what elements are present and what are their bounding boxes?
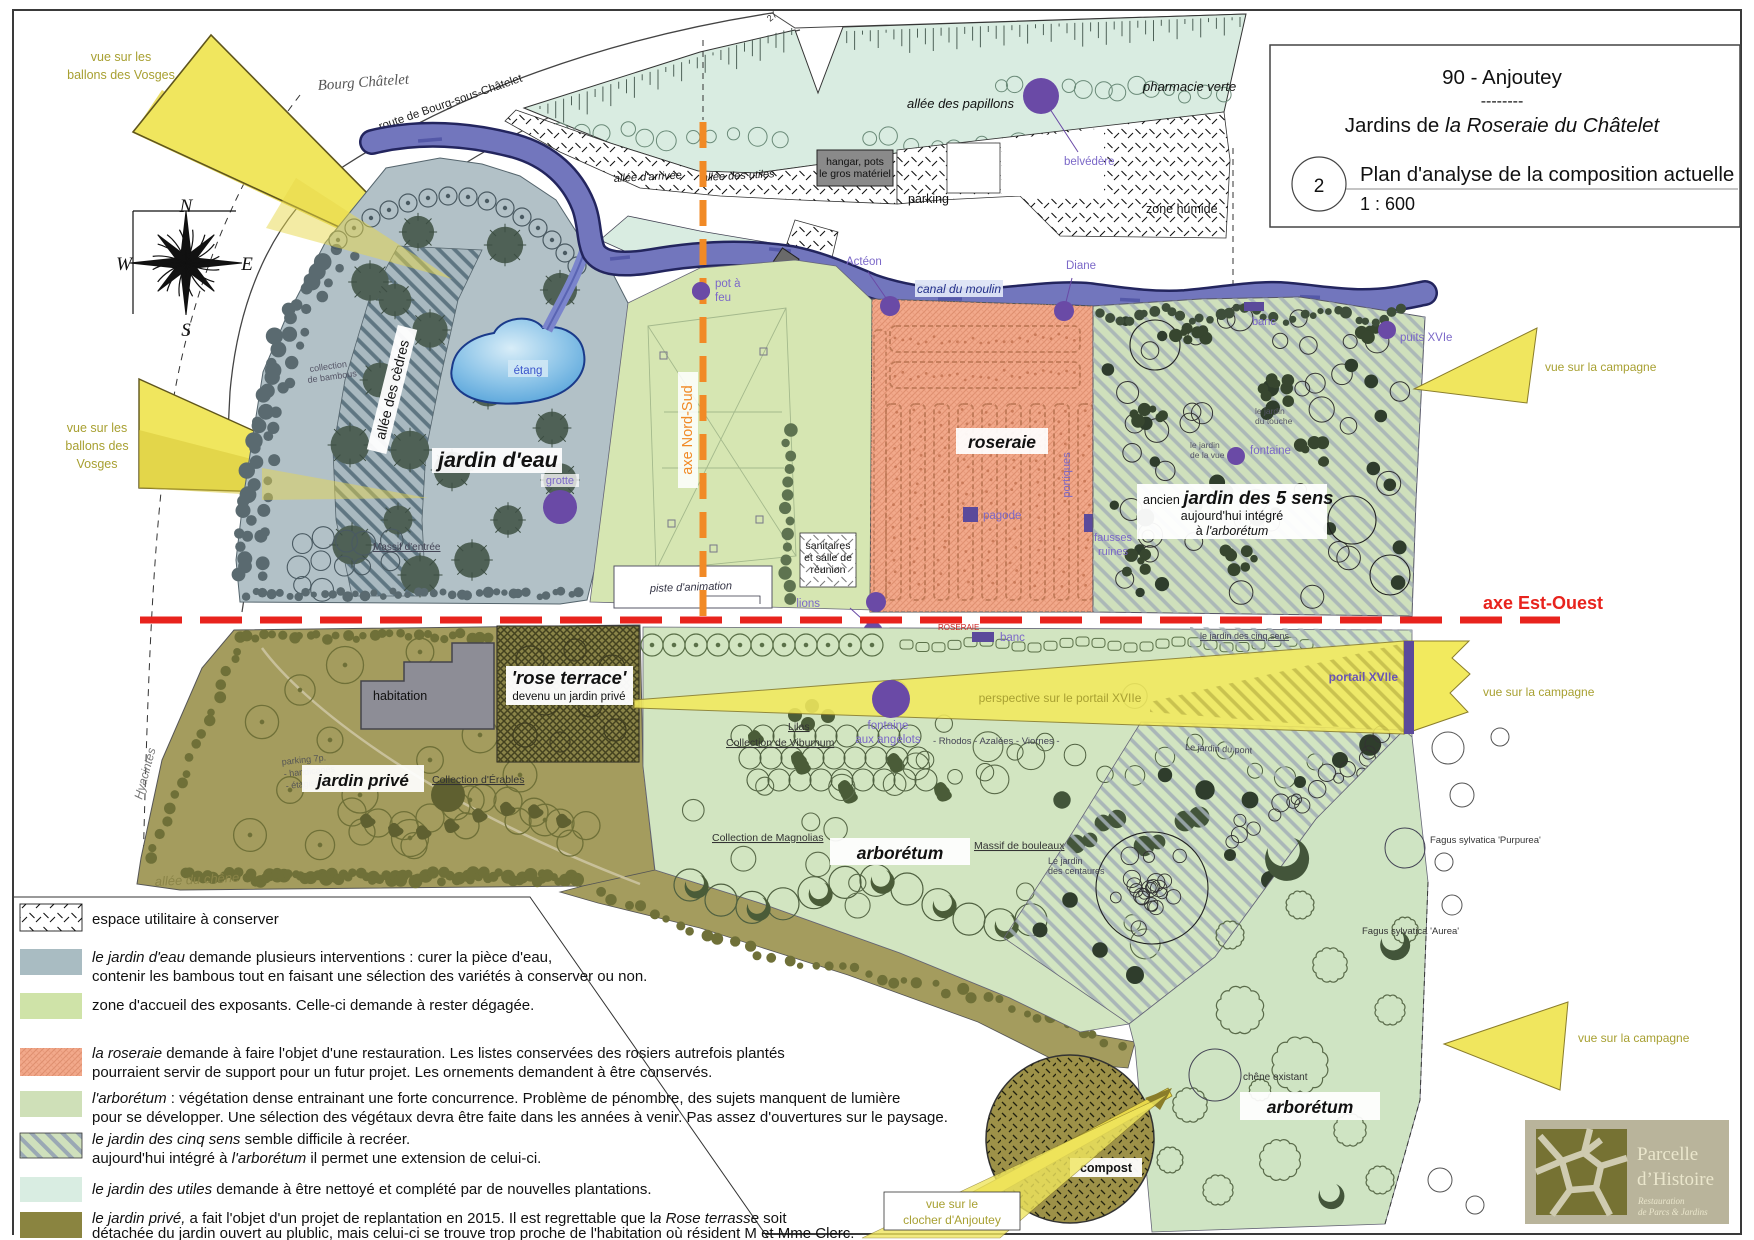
svg-text:aux angelots: aux angelots (855, 734, 920, 746)
svg-text:à l'arborétum: à l'arborétum (1196, 524, 1269, 538)
svg-text:de Parcs & Jardins: de Parcs & Jardins (1638, 1207, 1708, 1217)
svg-text:S: S (181, 320, 191, 341)
svg-text:fontaine: fontaine (1250, 445, 1291, 457)
svg-text:le jardin des utiles demande à: le jardin des utiles demande à être nett… (92, 1181, 652, 1198)
svg-text:E: E (240, 254, 253, 275)
svg-text:détachée du jardin ouvert au p: détachée du jardin ouvert au plublic, ma… (92, 1225, 854, 1240)
svg-text:axe Nord-Sud: axe Nord-Sud (680, 385, 696, 474)
svg-text:le jardin: le jardin (1190, 440, 1220, 450)
svg-text:Lilas: Lilas (788, 721, 810, 733)
svg-text:Le jardin: Le jardin (1048, 856, 1083, 866)
svg-text:pourraient servir de support p: pourraient servir de support pour un fut… (92, 1064, 712, 1081)
svg-text:Vosges: Vosges (76, 457, 117, 471)
svg-text:vue sur les: vue sur les (67, 421, 127, 435)
svg-text:Massif de bouleaux: Massif de bouleaux (974, 840, 1065, 852)
svg-text:sanitaires: sanitaires (806, 540, 851, 552)
svg-text:banc: banc (1000, 632, 1025, 644)
svg-text:portail XVIIe: portail XVIIe (1329, 670, 1399, 684)
svg-text:zone d'accueil des exposants.: zone d'accueil des exposants. Celle-ci d… (92, 997, 534, 1014)
svg-text:le gros matériel: le gros matériel (819, 168, 891, 180)
svg-text:devenu un jardin privé: devenu un jardin privé (512, 691, 625, 703)
svg-text:pot à: pot à (715, 278, 741, 290)
svg-text:banc: banc (1252, 316, 1276, 328)
svg-text:2: 2 (1314, 176, 1325, 197)
svg-text:arborétum: arborétum (857, 843, 944, 863)
svg-text:fontaine: fontaine (868, 720, 909, 732)
svg-text:fausses: fausses (1094, 532, 1132, 544)
svg-text:le jardin d'eau demande plusie: le jardin d'eau demande plusieurs interv… (92, 949, 552, 966)
svg-text:pharmacie verte: pharmacie verte (1142, 79, 1236, 94)
svg-text:arborétum: arborétum (1267, 1097, 1354, 1117)
svg-text:Fagus sylvatica 'Purpurea': Fagus sylvatica 'Purpurea' (1430, 835, 1541, 846)
svg-text:espace utilitaire à conserver: espace utilitaire à conserver (92, 911, 279, 928)
svg-text:N: N (179, 196, 194, 217)
svg-text:parking: parking (908, 192, 949, 206)
svg-text:le jardin des cinq sens semble: le jardin des cinq sens semble difficile… (92, 1131, 410, 1148)
svg-text:du touche: du touche (1255, 416, 1293, 426)
svg-text:étang: étang (514, 365, 543, 377)
svg-text:Fagus sylvatica 'Aurea': Fagus sylvatica 'Aurea' (1362, 926, 1459, 937)
svg-text:vue sur la campagne: vue sur la campagne (1578, 1031, 1690, 1045)
svg-text:grotte: grotte (546, 475, 574, 487)
svg-text:des centaures: des centaures (1048, 866, 1105, 876)
svg-text:lions: lions (796, 598, 820, 610)
svg-text:le jardin: le jardin (1255, 406, 1285, 416)
svg-text:perspective sur le portail XVI: perspective sur le portail XVIIe (979, 691, 1142, 705)
svg-text:contenir les bambous tout en f: contenir les bambous tout en faisant une… (92, 968, 647, 985)
svg-text:jardin privé: jardin privé (315, 771, 409, 790)
svg-text:ROSERAIE: ROSERAIE (938, 623, 979, 632)
svg-text:et salle de: et salle de (804, 552, 852, 564)
svg-text:Actéon: Actéon (846, 256, 882, 268)
svg-text:- Rhodos - Azalées - Viornes -: - Rhodos - Azalées - Viornes - (933, 736, 1060, 747)
svg-text:1 : 600: 1 : 600 (1360, 194, 1415, 214)
svg-text:hangar, pots: hangar, pots (826, 156, 884, 168)
svg-text:belvédère: belvédère (1064, 156, 1115, 168)
svg-text:Restauration: Restauration (1637, 1196, 1685, 1206)
svg-text:aujourd'hui intégré: aujourd'hui intégré (1181, 509, 1284, 523)
svg-text:jardin d'eau: jardin d'eau (435, 448, 558, 472)
svg-text:Jardins de la Roseraie du Chât: Jardins de la Roseraie du Châtelet (1345, 114, 1661, 137)
svg-text:le jardin des cinq sens: le jardin des cinq sens (1200, 631, 1290, 641)
svg-text:feu: feu (715, 292, 731, 304)
svg-text:Collection d'Érables: Collection d'Érables (432, 773, 524, 786)
svg-text:vue sur la campagne: vue sur la campagne (1483, 685, 1595, 699)
svg-text:allée des papillons: allée des papillons (907, 96, 1014, 111)
svg-text:axe Est-Ouest: axe Est-Ouest (1483, 593, 1603, 613)
svg-text:chêne existant: chêne existant (1243, 1072, 1308, 1083)
svg-text:canal du moulin: canal du moulin (917, 282, 1001, 296)
svg-text:aujourd'hui intégré à l'arboré: aujourd'hui intégré à l'arborétum il per… (92, 1150, 541, 1167)
svg-text:la roseraie demande à faire l': la roseraie demande à faire l'objet d'un… (92, 1045, 785, 1062)
svg-text:pour se développer. Une sélect: pour se développer. Une sélection des vé… (92, 1109, 948, 1126)
svg-text:Collection de Magnolias: Collection de Magnolias (712, 832, 823, 844)
svg-text:W: W (116, 254, 134, 275)
svg-text:pagode: pagode (983, 510, 1021, 522)
svg-text:vue sur le: vue sur le (926, 1197, 978, 1211)
svg-text:Plan d'analyse de la compositi: Plan d'analyse de la composition actuell… (1360, 163, 1734, 186)
svg-text:Parcelle: Parcelle (1637, 1144, 1698, 1165)
svg-text:Massif d'entrée: Massif d'entrée (373, 542, 441, 553)
svg-text:--------: -------- (1481, 93, 1524, 110)
svg-text:puits XVIe: puits XVIe (1400, 332, 1452, 344)
svg-text:de la vue: de la vue (1190, 450, 1225, 460)
svg-text:vue sur les: vue sur les (91, 50, 151, 64)
svg-text:réunion: réunion (810, 564, 845, 576)
svg-text:ruines: ruines (1098, 546, 1128, 558)
svg-text:roseraie: roseraie (968, 432, 1036, 452)
svg-text:clocher d'Anjoutey: clocher d'Anjoutey (903, 1213, 1001, 1227)
svg-text:90 - Anjoutey: 90 - Anjoutey (1442, 66, 1562, 89)
svg-text:ballons des Vosges: ballons des Vosges (67, 68, 175, 82)
svg-text:zone humide: zone humide (1146, 202, 1218, 216)
svg-text:vue sur la campagne: vue sur la campagne (1545, 360, 1657, 374)
svg-text:'rose terrace': 'rose terrace' (512, 667, 627, 688)
svg-text:d’Histoire: d’Histoire (1637, 1169, 1714, 1190)
svg-text:ballons des: ballons des (65, 439, 128, 453)
svg-text:portiques: portiques (1061, 452, 1073, 498)
svg-text:Diane: Diane (1066, 260, 1096, 272)
svg-text:l'arborétum : végétation dense: l'arborétum : végétation dense entrainan… (92, 1090, 900, 1107)
svg-text:Collection de Viburnum: Collection de Viburnum (726, 737, 835, 749)
svg-text:habitation: habitation (373, 689, 427, 703)
svg-text:compost: compost (1080, 1161, 1133, 1175)
